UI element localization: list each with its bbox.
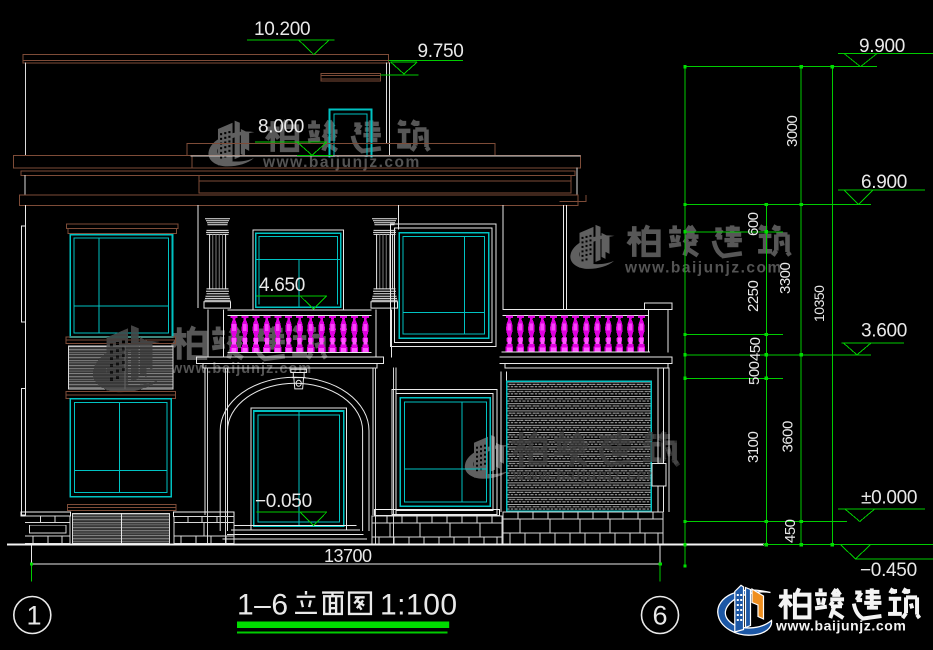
svg-text:3.600: 3.600 bbox=[861, 321, 907, 342]
svg-text:450: 450 bbox=[782, 519, 799, 543]
svg-text:±0.000: ±0.000 bbox=[861, 488, 917, 509]
svg-text:500: 500 bbox=[746, 361, 763, 385]
svg-text:3600: 3600 bbox=[780, 421, 797, 453]
svg-text:6.900: 6.900 bbox=[861, 172, 907, 193]
svg-text:600: 600 bbox=[745, 212, 762, 236]
svg-text:4.650: 4.650 bbox=[259, 275, 305, 296]
svg-text:9.750: 9.750 bbox=[418, 41, 464, 62]
svg-text:10.200: 10.200 bbox=[254, 19, 310, 40]
svg-text:8.000: 8.000 bbox=[258, 117, 304, 138]
svg-text:1–6: 1–6 bbox=[237, 589, 289, 622]
svg-text:10350: 10350 bbox=[811, 285, 827, 322]
svg-text:450: 450 bbox=[747, 337, 764, 361]
svg-text:13700: 13700 bbox=[324, 546, 372, 566]
svg-text:www.baijunjz.com: www.baijunjz.com bbox=[775, 618, 906, 634]
svg-text:6: 6 bbox=[653, 601, 668, 631]
svg-text:−0.450: −0.450 bbox=[860, 560, 917, 581]
svg-text:3000: 3000 bbox=[784, 115, 801, 147]
svg-text:www.baijunjz.com: www.baijunjz.com bbox=[624, 260, 783, 277]
svg-text:3300: 3300 bbox=[777, 262, 794, 294]
svg-text:1:100: 1:100 bbox=[380, 589, 458, 622]
svg-text:9.900: 9.900 bbox=[859, 36, 905, 57]
svg-text:3100: 3100 bbox=[745, 431, 762, 463]
svg-text:2250: 2250 bbox=[745, 280, 762, 312]
svg-text:−0.050: −0.050 bbox=[255, 491, 312, 512]
svg-text:1: 1 bbox=[27, 601, 42, 631]
svg-text:www.baijunjz.com: www.baijunjz.com bbox=[512, 467, 662, 484]
